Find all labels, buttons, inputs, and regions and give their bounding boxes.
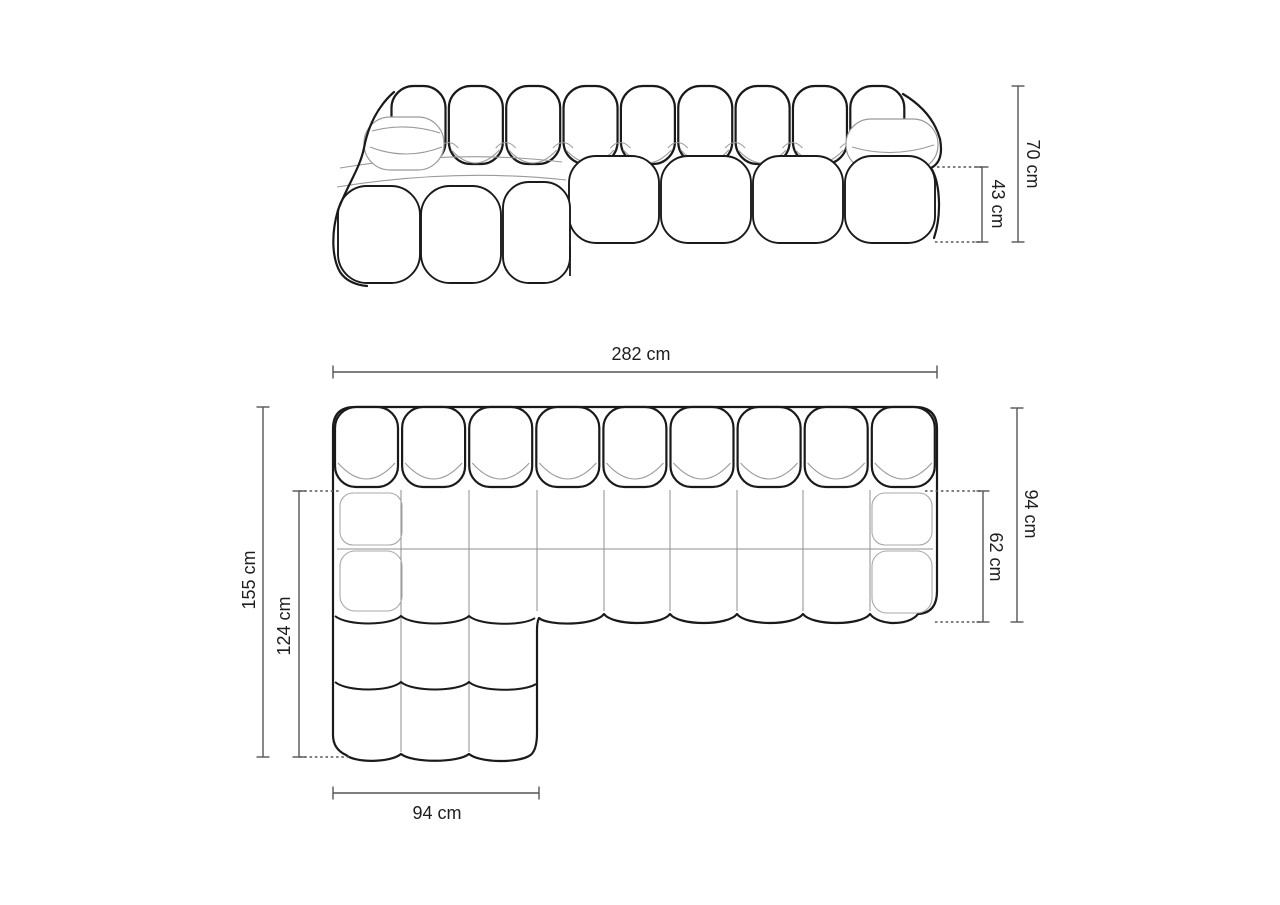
plan-back-cushion	[738, 407, 801, 487]
label-plan-body-depth: 94 cm	[1021, 489, 1041, 538]
dim-front-seat-height	[935, 167, 989, 242]
left-armrest	[364, 117, 444, 170]
plan-back-cushion	[671, 407, 734, 487]
plan-back-cushion	[335, 407, 398, 487]
front-seat-cushion	[753, 156, 843, 243]
dim-plan-total-width	[333, 366, 937, 379]
front-seat-cushion	[569, 156, 659, 243]
front-back-cushion	[506, 86, 560, 164]
front-back-cushion	[736, 86, 790, 164]
front-chaise-cushion	[338, 186, 420, 283]
label-plan-chaise-width: 94 cm	[412, 803, 461, 823]
sofa-dimension-diagram: 70 cm 43 cm 282 cm 155 cm 124 cm 94 cm 6…	[0, 0, 1280, 905]
plan-back-cushion	[805, 407, 868, 487]
top-view-drawing	[333, 407, 937, 761]
front-back-cushion	[564, 86, 618, 164]
front-view-drawing	[333, 86, 941, 286]
plan-back-cushion	[603, 407, 666, 487]
label-front-total-height: 70 cm	[1023, 139, 1043, 188]
label-plan-total-depth: 155 cm	[239, 550, 259, 609]
label-front-seat-height: 43 cm	[988, 179, 1008, 228]
front-chaise-cushion	[503, 182, 570, 283]
front-back-cushion	[793, 86, 847, 164]
front-back-cushion	[621, 86, 675, 164]
front-back-cushions	[392, 86, 905, 164]
plan-back-cushion	[402, 407, 465, 487]
diagram-canvas: 70 cm 43 cm 282 cm 155 cm 124 cm 94 cm 6…	[0, 0, 1280, 905]
front-chaise-cushions	[338, 182, 570, 283]
plan-back-cushion	[536, 407, 599, 487]
dim-plan-chaise-width	[333, 787, 539, 800]
front-seat-cushion	[845, 156, 935, 243]
front-back-cushion	[449, 86, 503, 164]
left-armrest-roll	[364, 117, 444, 170]
front-seat-cushion	[661, 156, 751, 243]
plan-back-cushion	[872, 407, 935, 487]
dim-front-total-height	[1012, 86, 1025, 242]
plan-back-cushion	[469, 407, 532, 487]
label-plan-seat-depth: 62 cm	[986, 532, 1006, 581]
plan-back-cushions	[335, 407, 935, 487]
front-back-cushion	[678, 86, 732, 164]
front-seat-cushions	[569, 156, 935, 243]
front-chaise-cushion	[421, 186, 501, 283]
label-plan-total-width: 282 cm	[611, 344, 670, 364]
label-plan-chaise-inner-depth: 124 cm	[274, 596, 294, 655]
